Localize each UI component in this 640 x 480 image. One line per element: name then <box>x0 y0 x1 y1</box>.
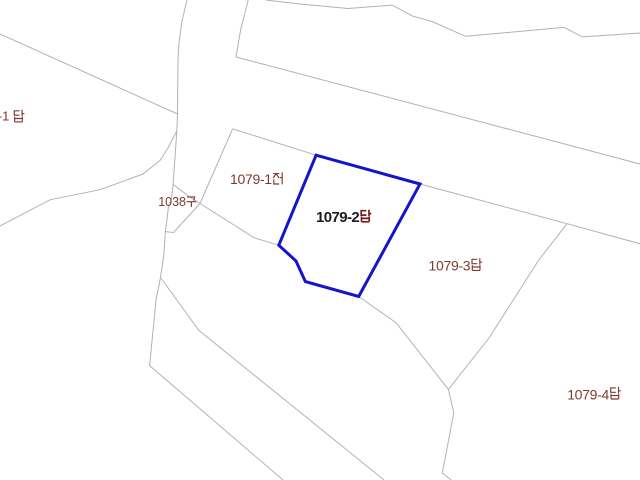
svg-text:-1: -1 <box>0 108 9 123</box>
svg-text:1079-3: 1079-3 <box>429 258 471 274</box>
svg-text:1038: 1038 <box>158 195 186 209</box>
svg-text:1079-4: 1079-4 <box>567 386 609 402</box>
svg-text:1079-2: 1079-2 <box>316 209 359 226</box>
svg-text:1079-1: 1079-1 <box>230 171 272 187</box>
